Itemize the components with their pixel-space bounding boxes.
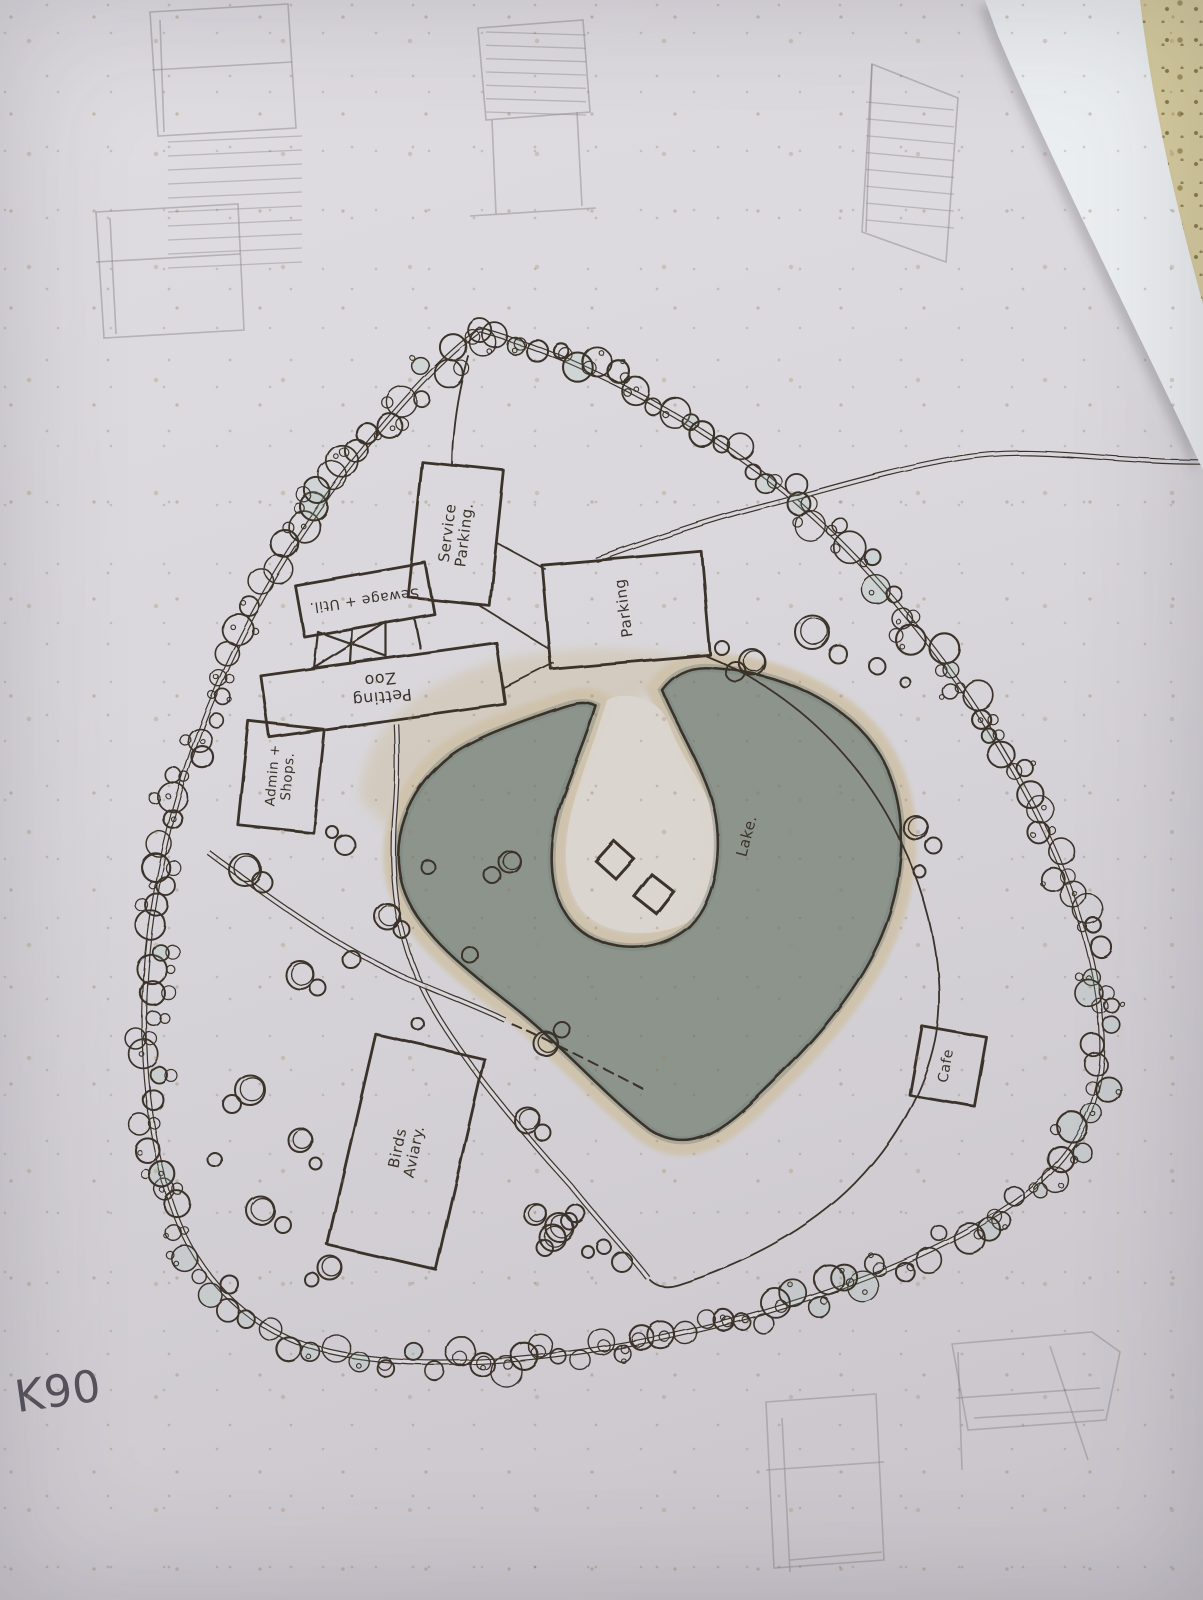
- ring-tree: [753, 1313, 773, 1333]
- overlapping-paper-corner: [978, 0, 1203, 475]
- double-path-gap: [596, 453, 1203, 560]
- ring-dot: [241, 601, 246, 606]
- pencil-sketch: [577, 112, 582, 206]
- ring-tree: [756, 474, 776, 494]
- ring-tree: [864, 1254, 883, 1273]
- ring-tree: [405, 1343, 423, 1361]
- tree: [305, 1273, 319, 1287]
- ring-tree: [861, 575, 890, 604]
- ring-tree-small: [831, 544, 840, 553]
- building-birds-aviary: [327, 1034, 485, 1270]
- pencil-sketch: [160, 20, 164, 132]
- ring-tree: [931, 1225, 946, 1240]
- ring-tree-small: [161, 985, 175, 999]
- pencil-hatch: [866, 102, 954, 228]
- ring-tree: [1057, 1112, 1087, 1142]
- tree-inner: [801, 618, 828, 645]
- ring-tree: [146, 1011, 160, 1025]
- ring-dot: [896, 620, 901, 625]
- pencil-sketch: [782, 1418, 790, 1572]
- ring-dot: [214, 675, 219, 680]
- ring-tree: [1017, 760, 1033, 776]
- tree: [310, 1158, 322, 1170]
- tree: [326, 826, 338, 838]
- site-plan-sketch-photo: Service Parking. Sewage + Util. Petting …: [0, 0, 1203, 1600]
- tree: [335, 835, 355, 855]
- ring-dot: [487, 349, 492, 354]
- pencil-sketch: [150, 4, 296, 136]
- ring-tree: [607, 360, 629, 382]
- ring-tree: [198, 1283, 222, 1307]
- pencil-sketch: [862, 64, 958, 262]
- tree: [869, 658, 885, 674]
- ring-dot: [1031, 833, 1036, 838]
- tree: [208, 1153, 222, 1167]
- ring-tree: [192, 1269, 206, 1283]
- pencil-sketch: [956, 1388, 1100, 1398]
- ring-tree: [779, 1279, 806, 1306]
- ring-dot: [160, 1188, 165, 1193]
- tree-inner: [240, 1077, 263, 1100]
- ring-dot: [1059, 1183, 1064, 1188]
- tree: [343, 951, 361, 969]
- tree: [221, 1276, 239, 1294]
- building-admin-shops: [238, 721, 324, 832]
- ring-tree: [350, 1352, 370, 1372]
- ink-path: [497, 543, 545, 569]
- ring-dot: [390, 426, 395, 431]
- ring-tree: [1075, 979, 1102, 1006]
- ring-dot: [200, 739, 205, 744]
- ring-tree: [191, 746, 213, 768]
- ring-tree: [412, 357, 429, 374]
- ring-dot: [900, 644, 905, 649]
- pencil-sketch: [974, 1410, 1104, 1418]
- ring-dot: [1042, 805, 1047, 810]
- ring-tree-small: [988, 714, 998, 724]
- paper-corner: [985, 0, 1203, 470]
- building-sewage-util: [295, 563, 434, 637]
- pencil-sketch: [110, 218, 116, 334]
- pencil-sketch: [790, 1552, 882, 1560]
- ring-dot: [1119, 1001, 1124, 1006]
- pencil-sketch: [766, 1394, 884, 1568]
- ink-path: [452, 356, 468, 466]
- tree: [829, 645, 847, 663]
- ring-dot: [410, 355, 415, 360]
- ring-tree: [865, 549, 881, 565]
- pencil-sketch: [152, 62, 292, 70]
- ring-tree: [943, 662, 959, 678]
- ring-dot: [599, 351, 604, 356]
- tree: [715, 641, 729, 655]
- ring-tree: [1086, 918, 1101, 933]
- tree-inner: [251, 1198, 273, 1220]
- ring-dot: [939, 695, 944, 700]
- ring-tree: [834, 532, 866, 564]
- tree: [926, 838, 942, 854]
- ring-tree: [809, 1296, 830, 1317]
- tree: [412, 1018, 424, 1030]
- ring-dot: [166, 794, 171, 799]
- pencil-sketch: [96, 254, 240, 262]
- tree: [223, 1095, 241, 1113]
- ring-tree: [1091, 937, 1112, 958]
- tree-inner: [323, 1258, 342, 1277]
- sketch-canvas: [0, 0, 1203, 1600]
- ring-tree: [172, 1246, 198, 1272]
- ring-tree: [150, 1162, 176, 1188]
- pencil-hatch: [168, 136, 302, 268]
- ring-tree-small: [166, 965, 174, 973]
- tree: [900, 677, 910, 687]
- ring-tree: [209, 713, 223, 727]
- ring-tree: [1073, 1143, 1092, 1162]
- ring-tree: [1033, 1184, 1047, 1198]
- tree-inner: [529, 1205, 546, 1222]
- ring-dot: [480, 1365, 485, 1370]
- ring-tree-small: [166, 861, 181, 876]
- tree: [274, 1216, 290, 1232]
- tree: [535, 1125, 551, 1141]
- pencil-sketch: [952, 1332, 1120, 1430]
- ring-tree: [237, 1310, 254, 1327]
- tree-inner: [545, 1227, 565, 1247]
- ring-tree: [1103, 1016, 1120, 1033]
- ring-tree: [833, 518, 848, 533]
- ring-tree: [304, 478, 329, 503]
- ring-tree: [215, 689, 230, 704]
- ring-tree: [895, 1262, 913, 1280]
- tree-inner: [291, 963, 313, 985]
- ring-tree: [129, 1113, 151, 1135]
- ring-dot: [137, 1150, 142, 1155]
- pencil-sketch: [958, 1352, 962, 1470]
- ring-tree: [165, 767, 181, 783]
- tree: [612, 1252, 632, 1272]
- pencil-sketch: [1050, 1346, 1088, 1460]
- ring-dot: [230, 624, 235, 629]
- building-cafe: [909, 1026, 986, 1106]
- tree: [597, 1240, 611, 1254]
- building-service-parking: [408, 462, 504, 606]
- tree: [914, 866, 926, 878]
- ring-tree: [564, 353, 593, 382]
- ring-tree-small: [1075, 973, 1083, 981]
- ring-tree: [435, 360, 463, 388]
- ring-dot: [334, 454, 339, 459]
- pencil-sketch: [492, 120, 496, 214]
- tree-inner: [293, 1130, 312, 1149]
- tree: [310, 980, 326, 996]
- tree-inner: [519, 1109, 539, 1129]
- pencil-sketch: [470, 208, 596, 216]
- pencil-hatch: [486, 32, 586, 115]
- tree: [582, 1246, 594, 1258]
